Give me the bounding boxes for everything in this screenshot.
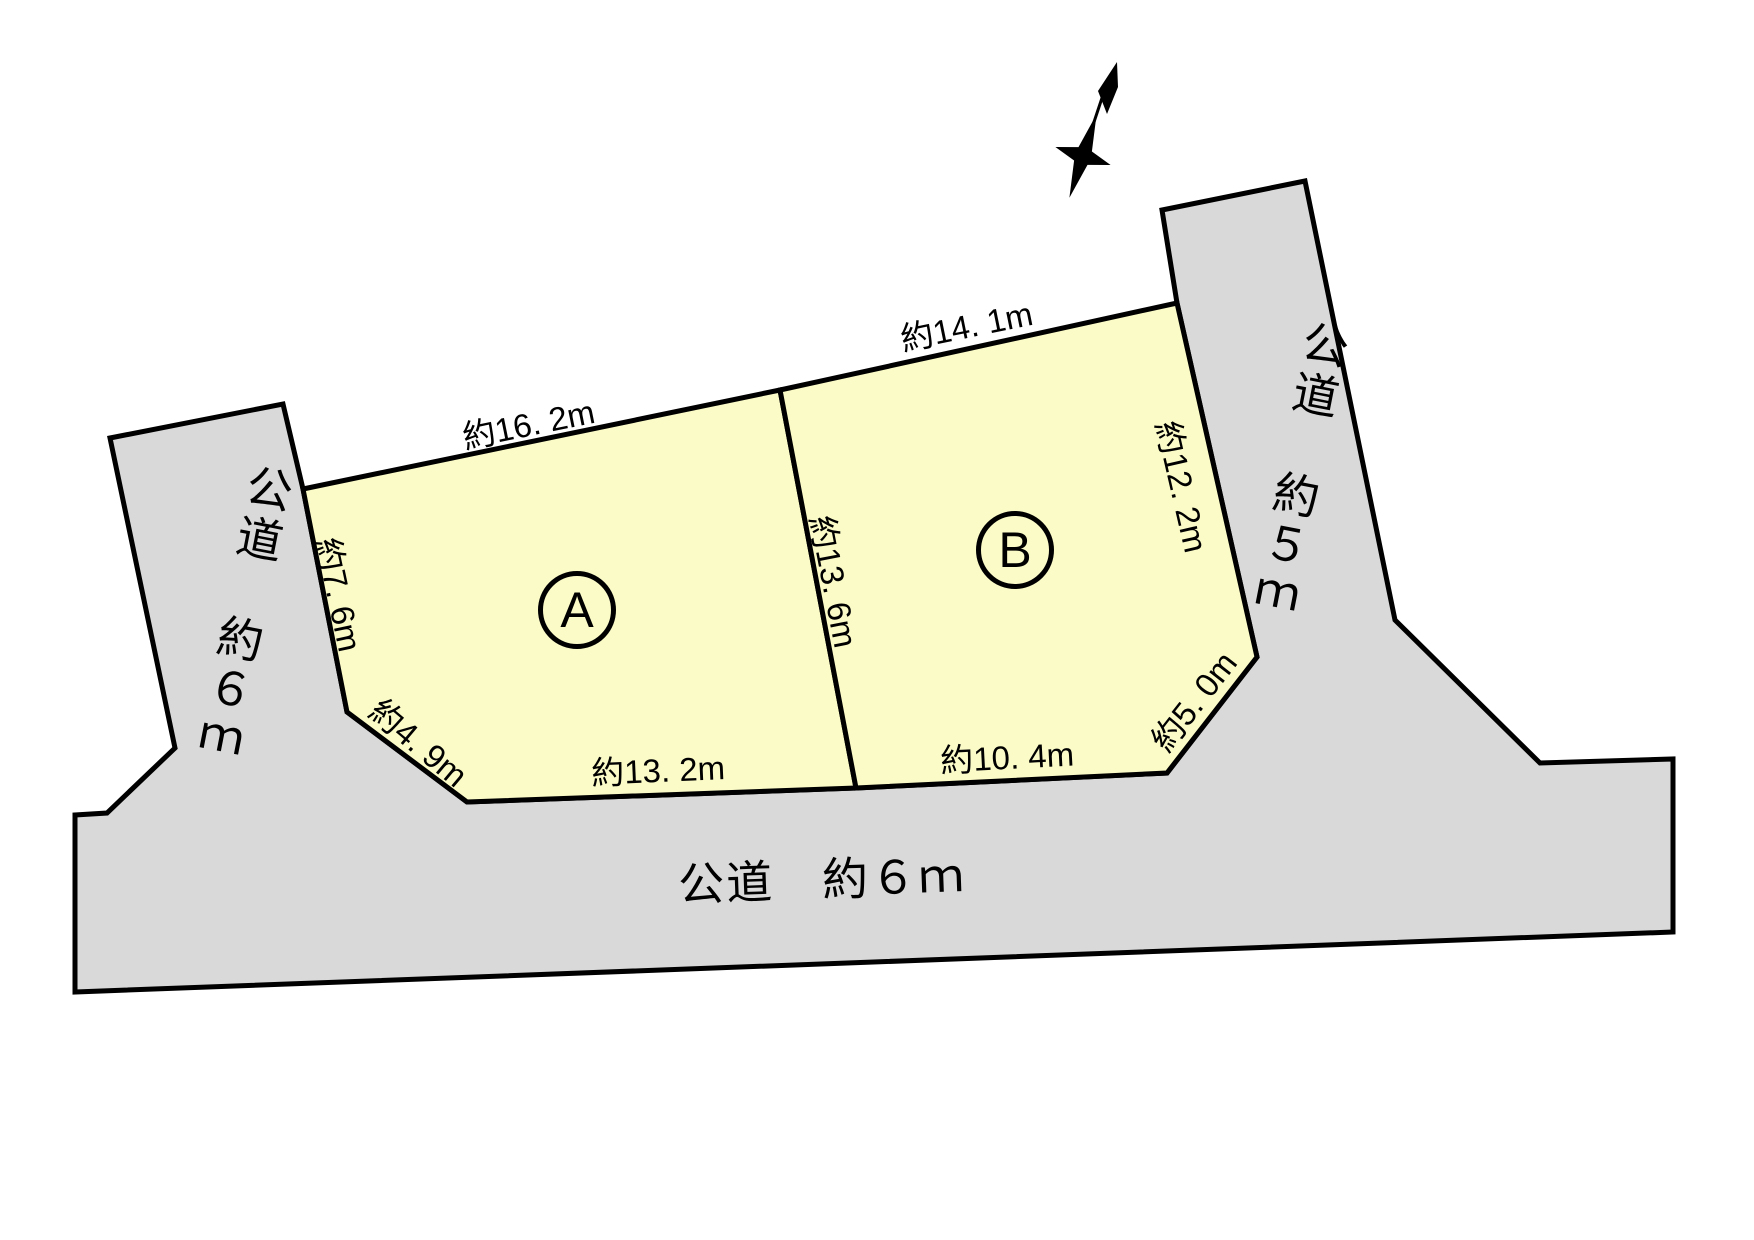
parcel-b-badge: B <box>976 511 1054 589</box>
parcel-a-bottom-dimension: 約13. 2m <box>590 741 726 795</box>
parcel-a-badge: A <box>538 571 616 649</box>
north-arrow-star <box>1055 114 1110 198</box>
site-plan: 公道 約６ｍ 公道 約５ｍ 公道 約６ｍ 約16. 2m 約7. 6m 約4. … <box>0 0 1754 1240</box>
road-bottom-label: 公道 約６ｍ <box>677 839 967 915</box>
parcel-b-bottom-dimension: 約10. 4m <box>939 728 1075 783</box>
parcel-b-badge-letter: B <box>998 525 1031 575</box>
parcel-a-badge-letter: A <box>560 585 593 635</box>
north-arrow <box>1055 62 1118 198</box>
north-arrow-head <box>1098 62 1118 114</box>
